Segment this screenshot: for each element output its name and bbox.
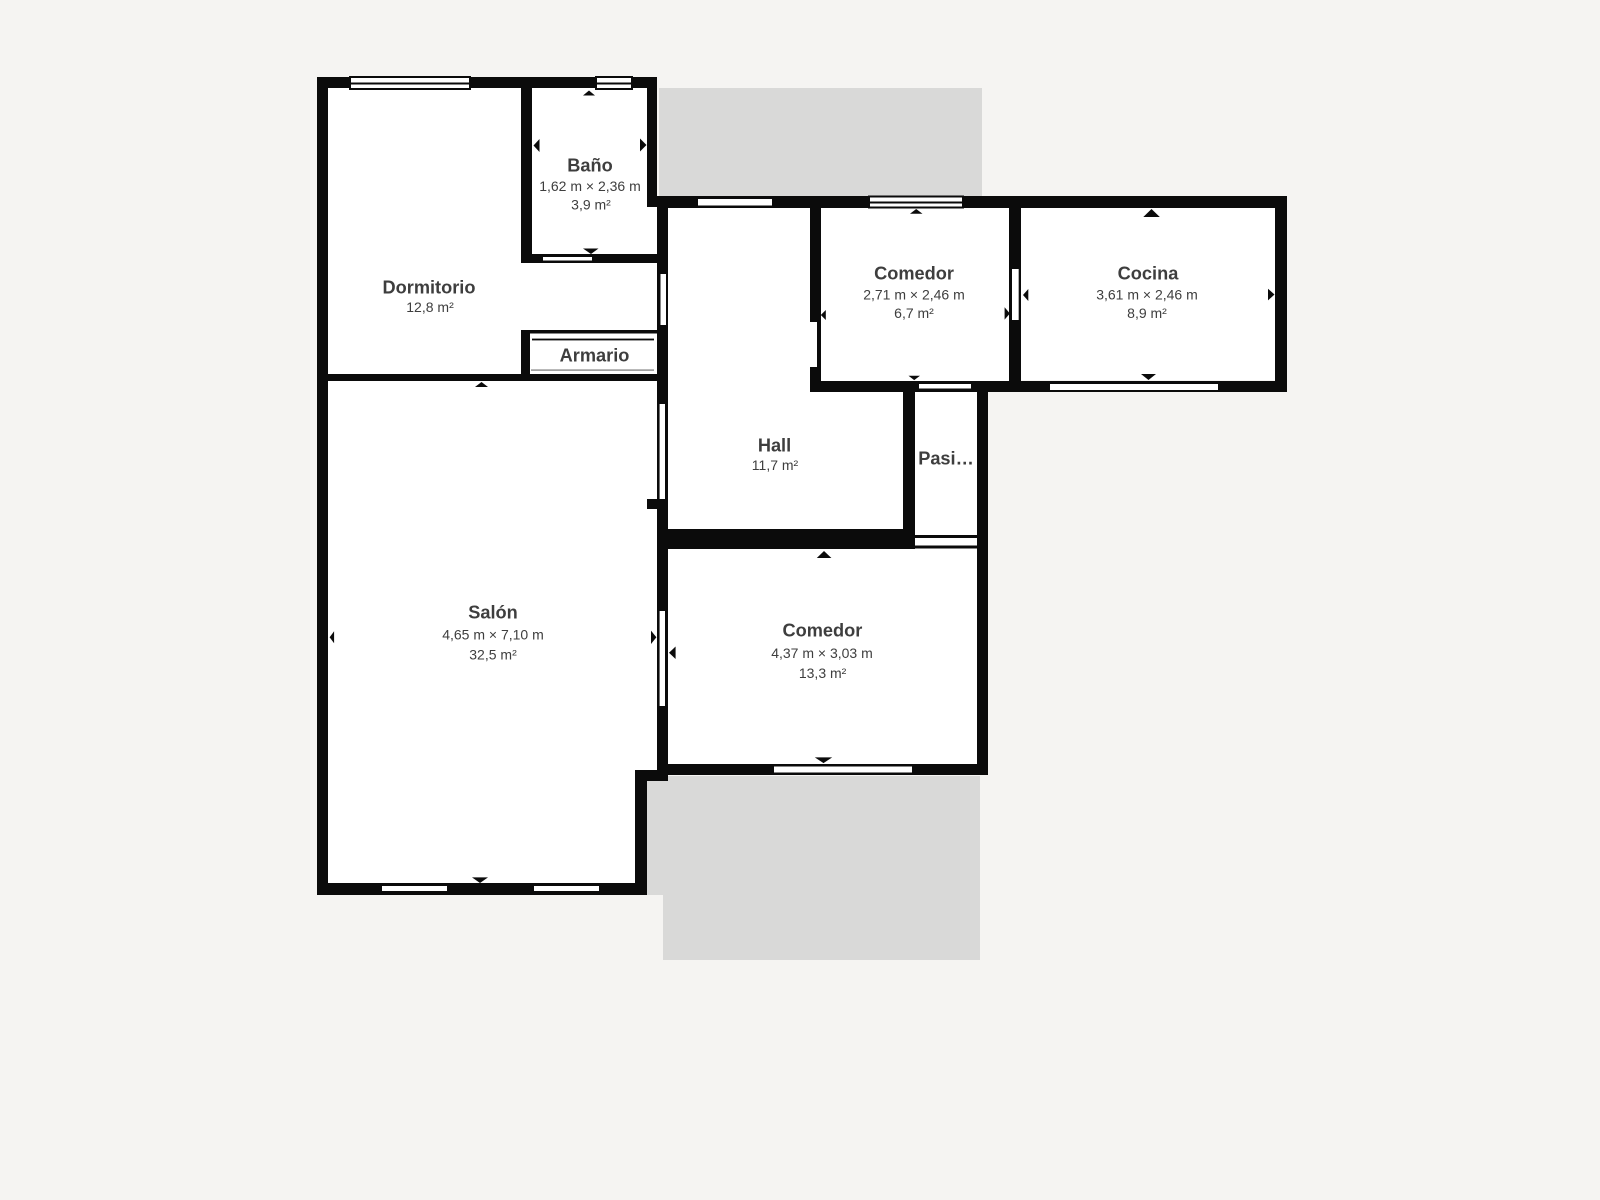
svg-text:11,7 m²: 11,7 m² — [752, 457, 799, 473]
svg-text:Baño: Baño — [567, 156, 612, 176]
svg-text:3,61 m × 2,46 m: 3,61 m × 2,46 m — [1096, 286, 1198, 302]
svg-text:32,5 m²: 32,5 m² — [469, 647, 517, 663]
svg-text:Hall: Hall — [758, 436, 791, 456]
svg-text:Armario: Armario — [560, 346, 630, 366]
svg-text:8,9 m²: 8,9 m² — [1127, 305, 1167, 321]
svg-text:2,71 m × 2,46 m: 2,71 m × 2,46 m — [863, 286, 965, 302]
svg-text:Salón: Salón — [468, 603, 518, 623]
svg-text:Cocina: Cocina — [1118, 264, 1180, 284]
svg-text:Comedor: Comedor — [782, 621, 862, 641]
svg-text:1,62 m × 2,36 m: 1,62 m × 2,36 m — [539, 178, 641, 194]
svg-text:12,8 m²: 12,8 m² — [406, 299, 454, 315]
svg-text:4,65 m × 7,10 m: 4,65 m × 7,10 m — [442, 627, 544, 643]
svg-text:3,9 m²: 3,9 m² — [571, 197, 611, 213]
svg-text:6,7 m²: 6,7 m² — [894, 305, 934, 321]
svg-text:13,3 m²: 13,3 m² — [799, 665, 847, 681]
svg-text:Pasi…: Pasi… — [918, 449, 974, 469]
svg-text:Dormitorio: Dormitorio — [383, 278, 476, 298]
svg-text:Comedor: Comedor — [874, 264, 954, 284]
svg-text:4,37 m × 3,03 m: 4,37 m × 3,03 m — [771, 645, 873, 661]
